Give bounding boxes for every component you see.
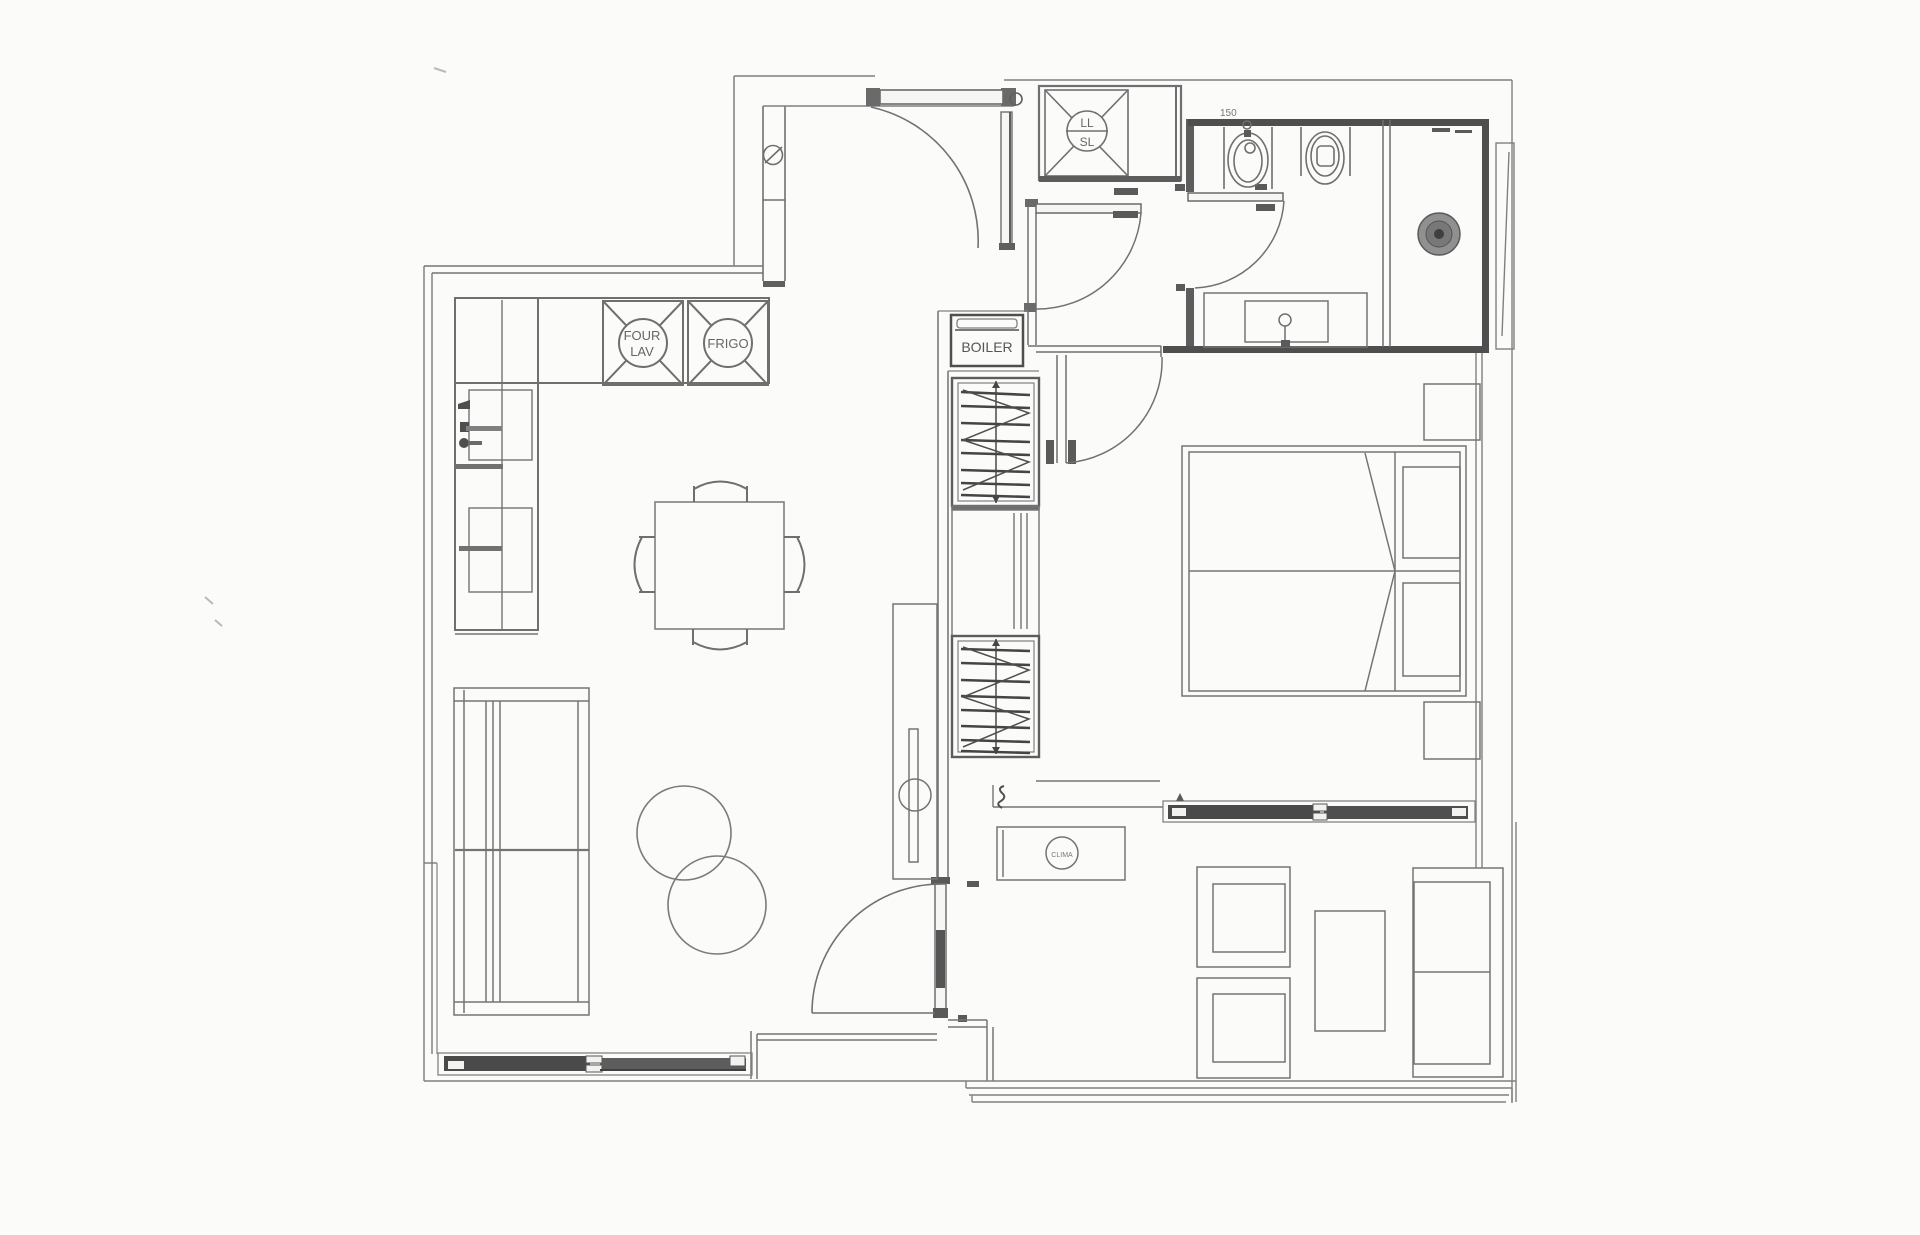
svg-text:150: 150 (1220, 108, 1237, 119)
svg-text:FOUR: FOUR (624, 328, 661, 343)
svg-text:LL: LL (1080, 116, 1094, 130)
svg-text:FRIGO: FRIGO (707, 336, 748, 351)
svg-text:BOILER: BOILER (961, 339, 1012, 355)
svg-text:SL: SL (1080, 135, 1095, 149)
svg-text:CLIMA: CLIMA (1051, 852, 1073, 859)
svg-text:LAV: LAV (630, 344, 654, 359)
